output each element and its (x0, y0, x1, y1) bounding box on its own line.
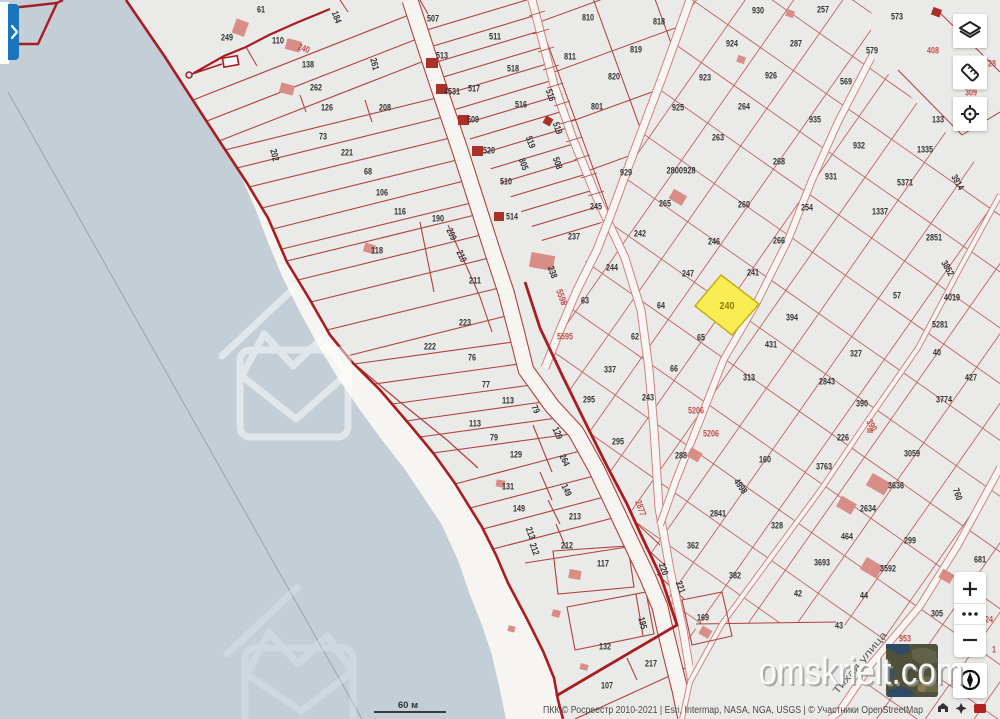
svg-text:931: 931 (825, 172, 838, 183)
svg-text:113: 113 (502, 396, 514, 407)
svg-text:118: 118 (371, 246, 383, 257)
svg-text:2841: 2841 (710, 509, 727, 520)
svg-text:5371: 5371 (897, 178, 914, 189)
svg-text:ПКК © Росреестр 2010-2021 | Es: ПКК © Росреестр 2010-2021 | Esri, Interm… (543, 705, 923, 716)
svg-text:132: 132 (599, 642, 611, 653)
svg-text:257: 257 (817, 5, 829, 16)
svg-text:63: 63 (581, 296, 589, 307)
svg-text:212: 212 (561, 541, 573, 552)
svg-text:517: 517 (468, 84, 480, 95)
svg-text:464: 464 (841, 532, 854, 543)
svg-text:287: 287 (790, 39, 802, 50)
svg-text:65: 65 (697, 333, 706, 344)
svg-text:247: 247 (682, 269, 694, 280)
svg-text:681: 681 (974, 555, 987, 566)
svg-text:820: 820 (608, 72, 620, 83)
svg-text:810: 810 (582, 13, 594, 24)
svg-text:266: 266 (773, 236, 785, 247)
svg-text:514: 514 (506, 212, 519, 223)
svg-text:264: 264 (738, 102, 751, 113)
svg-text:68: 68 (364, 167, 372, 178)
svg-text:133: 133 (932, 115, 944, 126)
svg-text:208: 208 (379, 103, 391, 114)
svg-text:5281: 5281 (932, 320, 949, 331)
svg-text:5206: 5206 (703, 429, 719, 440)
svg-text:106: 106 (376, 188, 388, 199)
svg-text:221: 221 (341, 148, 354, 159)
svg-text:268: 268 (773, 157, 785, 168)
svg-text:818: 818 (653, 17, 665, 28)
svg-text:222: 222 (424, 342, 436, 353)
svg-text:213: 213 (569, 512, 581, 523)
svg-text:240: 240 (720, 301, 735, 312)
svg-text:518: 518 (507, 64, 519, 75)
svg-text:511: 511 (489, 32, 502, 43)
svg-text:116: 116 (394, 207, 406, 218)
svg-text:3693: 3693 (814, 558, 830, 569)
svg-text:237: 237 (568, 232, 580, 243)
svg-text:242: 242 (634, 229, 646, 240)
svg-text:288: 288 (675, 451, 687, 462)
svg-text:431: 431 (765, 340, 778, 351)
svg-text:3059: 3059 (904, 449, 920, 460)
svg-text:2843: 2843 (819, 377, 835, 388)
svg-text:265: 265 (659, 199, 672, 210)
svg-text:190: 190 (432, 214, 444, 225)
svg-text:509: 509 (467, 115, 479, 126)
svg-text:926: 926 (765, 71, 777, 82)
svg-text:569: 569 (840, 77, 852, 88)
svg-text:62: 62 (631, 332, 639, 343)
svg-text:295: 295 (612, 437, 625, 448)
svg-text:932: 932 (853, 141, 865, 152)
svg-text:24: 24 (985, 615, 994, 626)
svg-text:4531: 4531 (444, 87, 461, 98)
svg-text:2800928: 2800928 (667, 166, 696, 177)
svg-text:241: 241 (747, 268, 760, 279)
svg-text:362: 362 (687, 541, 699, 552)
svg-text:337: 337 (604, 365, 616, 376)
svg-text:3636: 3636 (888, 481, 904, 492)
svg-text:138: 138 (302, 60, 314, 71)
svg-text:1335: 1335 (917, 145, 934, 156)
svg-text:924: 924 (726, 39, 739, 50)
svg-text:305: 305 (931, 609, 944, 620)
svg-text:263: 263 (712, 133, 724, 144)
svg-text:925: 925 (672, 103, 685, 114)
svg-text:930: 930 (752, 6, 764, 17)
svg-text:2851: 2851 (926, 233, 943, 244)
svg-text:169: 169 (697, 613, 709, 624)
svg-text:226: 226 (837, 433, 849, 444)
svg-text:131: 131 (502, 482, 515, 493)
svg-text:516: 516 (515, 100, 527, 111)
svg-text:3763: 3763 (816, 462, 832, 473)
svg-text:513: 513 (436, 51, 448, 62)
svg-text:107: 107 (601, 681, 613, 692)
svg-text:801: 801 (591, 102, 604, 113)
svg-text:5206: 5206 (688, 406, 704, 417)
svg-text:126: 126 (321, 103, 333, 114)
svg-text:28: 28 (988, 59, 996, 70)
svg-text:omskrielt.com: omskrielt.com (759, 651, 964, 693)
svg-text:520: 520 (483, 146, 495, 157)
svg-text:327: 327 (850, 349, 862, 360)
svg-text:42: 42 (794, 589, 802, 600)
svg-text:819: 819 (630, 45, 642, 56)
svg-text:313: 313 (743, 373, 755, 384)
svg-text:117: 117 (597, 559, 609, 570)
svg-text:113: 113 (469, 419, 481, 430)
svg-text:110: 110 (272, 36, 284, 47)
svg-text:66: 66 (670, 364, 678, 375)
svg-text:3592: 3592 (880, 564, 896, 575)
svg-text:149: 149 (513, 504, 525, 515)
svg-text:579: 579 (866, 46, 878, 57)
svg-text:3774: 3774 (936, 395, 953, 406)
svg-text:2634: 2634 (860, 504, 877, 515)
svg-text:1: 1 (992, 645, 997, 656)
svg-text:79: 79 (490, 433, 498, 444)
svg-text:223: 223 (459, 318, 471, 329)
svg-text:73: 73 (319, 132, 327, 143)
svg-text:243: 243 (642, 393, 654, 404)
svg-text:923: 923 (699, 73, 711, 84)
svg-text:61: 61 (257, 5, 266, 16)
svg-text:262: 262 (310, 83, 322, 94)
svg-text:246: 246 (708, 237, 720, 248)
svg-text:217: 217 (645, 659, 657, 670)
svg-text:408: 408 (927, 46, 939, 57)
svg-text:382: 382 (729, 571, 741, 582)
svg-text:4019: 4019 (944, 293, 960, 304)
svg-text:935: 935 (809, 115, 822, 126)
svg-text:510: 510 (500, 177, 512, 188)
svg-text:1337: 1337 (872, 207, 888, 218)
svg-text:40: 40 (933, 348, 941, 359)
svg-text:57: 57 (893, 291, 901, 302)
svg-text:5595: 5595 (557, 332, 574, 343)
svg-text:811: 811 (564, 52, 577, 63)
svg-text:211: 211 (469, 276, 482, 287)
svg-text:573: 573 (891, 12, 903, 23)
svg-text:295: 295 (583, 395, 596, 406)
svg-text:160: 160 (759, 455, 771, 466)
svg-text:260: 260 (738, 200, 750, 211)
svg-text:249: 249 (221, 33, 233, 44)
svg-text:953: 953 (899, 634, 911, 645)
svg-text:390: 390 (856, 399, 868, 410)
svg-text:43: 43 (835, 621, 843, 632)
svg-text:328: 328 (771, 521, 783, 532)
svg-text:299: 299 (904, 536, 916, 547)
svg-text:254: 254 (801, 203, 814, 214)
svg-text:929: 929 (620, 168, 632, 179)
svg-text:394: 394 (786, 313, 799, 324)
svg-text:245: 245 (590, 202, 603, 213)
svg-text:129: 129 (510, 450, 522, 461)
svg-text:76: 76 (468, 353, 476, 364)
svg-text:60 м: 60 м (398, 700, 418, 711)
svg-text:507: 507 (427, 14, 439, 25)
svg-text:244: 244 (606, 263, 619, 274)
svg-text:427: 427 (965, 373, 977, 384)
svg-text:77: 77 (482, 380, 490, 391)
svg-text:64: 64 (657, 301, 666, 312)
svg-text:44: 44 (860, 591, 869, 602)
